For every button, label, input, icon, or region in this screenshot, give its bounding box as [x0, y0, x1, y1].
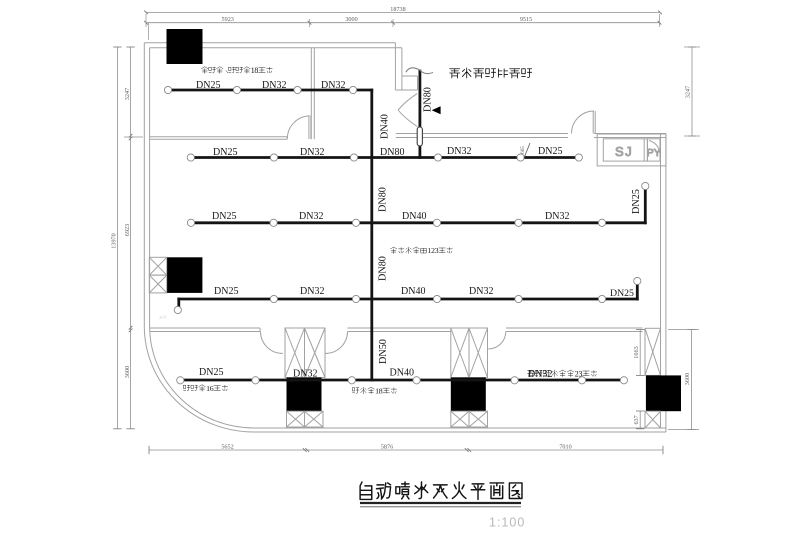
svg-text:5652: 5652 [221, 444, 233, 451]
svg-text:DN32: DN32 [299, 211, 323, 222]
svg-text:SJ: SJ [615, 144, 633, 159]
svg-text:DN80: DN80 [423, 87, 434, 112]
svg-text:DN25: DN25 [212, 211, 236, 222]
svg-text:DN25: DN25 [538, 146, 562, 157]
svg-text:DN40: DN40 [390, 368, 414, 379]
svg-text:DN32: DN32 [469, 286, 493, 297]
svg-text:DN25: DN25 [196, 80, 220, 91]
svg-text:DN32: DN32 [300, 147, 324, 158]
svg-text:DN40: DN40 [380, 114, 391, 139]
svg-text:DN80: DN80 [378, 187, 389, 212]
svg-text:1663: 1663 [633, 346, 640, 358]
svg-text:637: 637 [633, 415, 640, 424]
svg-text:6: 6 [210, 384, 214, 393]
svg-text:PY: PY [647, 147, 661, 159]
svg-text:DN80: DN80 [378, 256, 389, 281]
svg-text:3247: 3247 [124, 88, 131, 100]
svg-text:3247: 3247 [685, 86, 692, 98]
svg-text:DN40: DN40 [401, 286, 425, 297]
svg-text:7010: 7010 [559, 444, 571, 451]
svg-text:DN25: DN25 [199, 367, 223, 378]
svg-text:DN40: DN40 [402, 211, 426, 222]
svg-text:3600: 3600 [124, 366, 131, 378]
svg-text:DN32: DN32 [447, 146, 471, 157]
svg-text:DN25: DN25 [610, 288, 634, 299]
svg-text:DN50: DN50 [378, 339, 389, 364]
svg-text:5876: 5876 [381, 444, 393, 451]
svg-text:13970: 13970 [111, 233, 118, 248]
svg-text:9515: 9515 [520, 16, 532, 23]
svg-text:18738: 18738 [390, 6, 405, 13]
svg-text:DN32: DN32 [300, 286, 324, 297]
svg-text:8: 8 [379, 387, 383, 396]
svg-text:DN32: DN32 [262, 80, 286, 91]
svg-text:6923: 6923 [124, 224, 131, 236]
svg-text:8: 8 [254, 66, 258, 75]
svg-text:DN80: DN80 [380, 147, 404, 158]
svg-text:3: 3 [579, 369, 583, 378]
svg-text:DN32: DN32 [321, 80, 345, 91]
svg-text:3600: 3600 [684, 373, 691, 385]
svg-text:DN32: DN32 [293, 369, 317, 380]
svg-text:3: 3 [435, 246, 439, 255]
svg-text:5923: 5923 [222, 16, 234, 23]
svg-text:DN25: DN25 [631, 189, 642, 214]
svg-text:665: 665 [520, 146, 526, 154]
svg-text:3000: 3000 [345, 16, 357, 23]
svg-text:1:100: 1:100 [489, 516, 525, 530]
svg-text:DN25: DN25 [213, 147, 237, 158]
svg-text:DN32: DN32 [545, 211, 569, 222]
svg-text:DN25: DN25 [214, 286, 238, 297]
